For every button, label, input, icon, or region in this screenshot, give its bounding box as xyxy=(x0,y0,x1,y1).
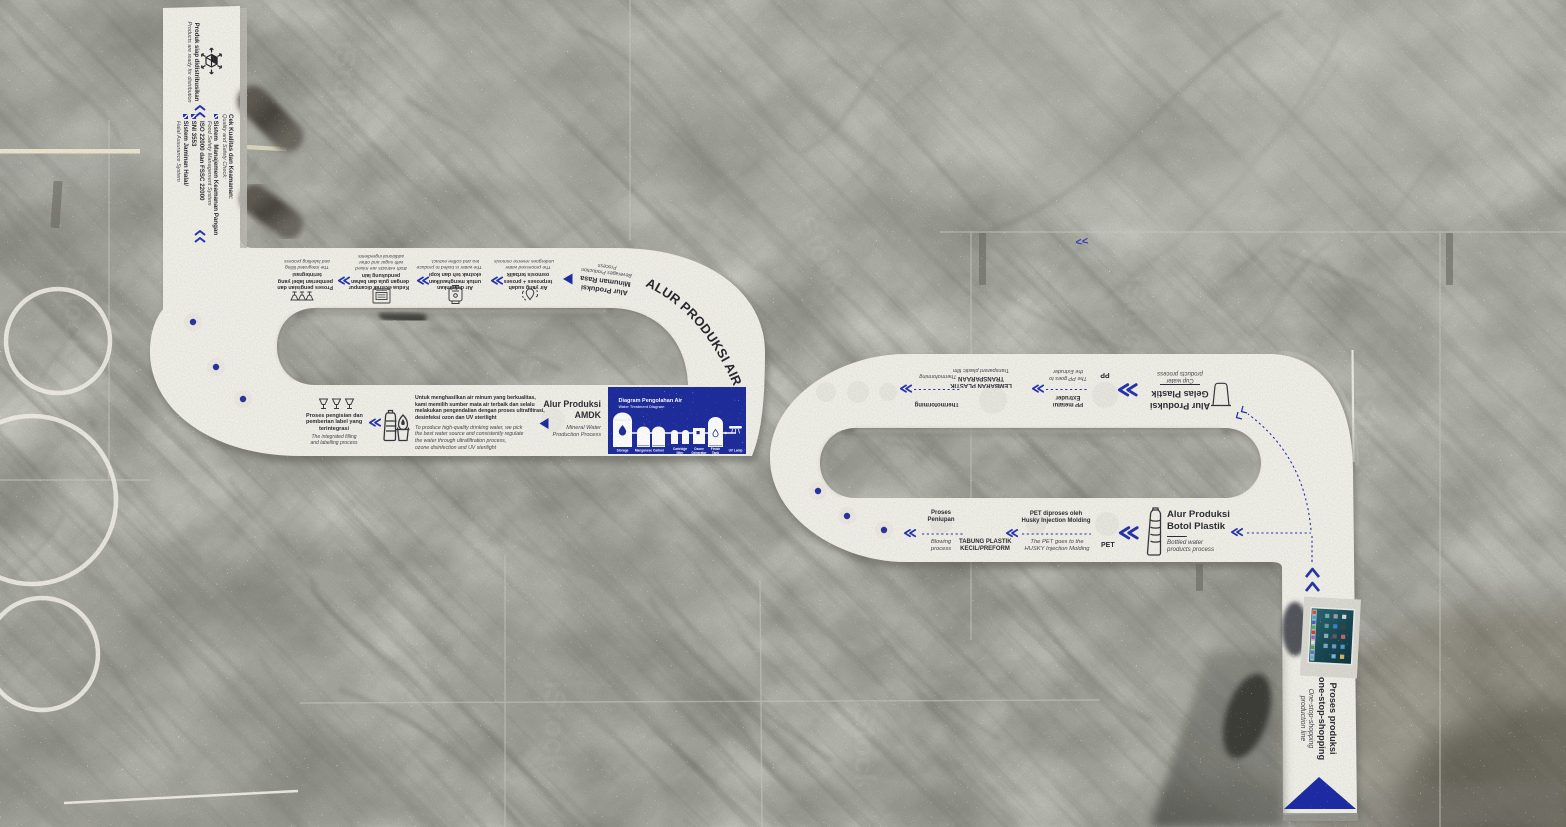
svg-text:ALUR PRODUKSI AIR: ALUR PRODUKSI AIR xyxy=(644,275,745,388)
